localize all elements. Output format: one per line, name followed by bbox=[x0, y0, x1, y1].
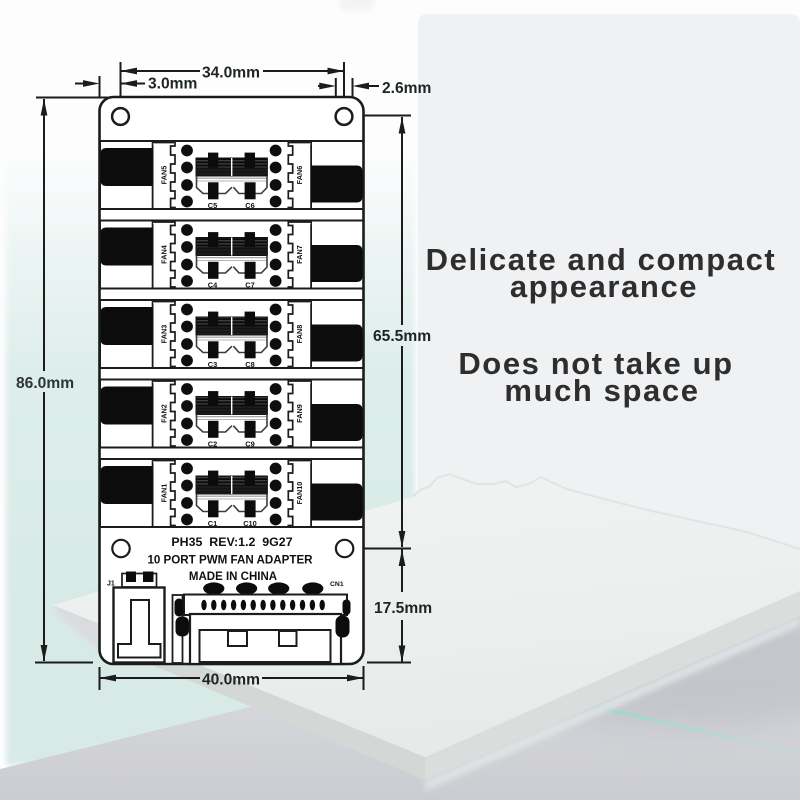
svg-text:MADE IN CHINA: MADE IN CHINA bbox=[189, 571, 277, 583]
svg-text:FAN9: FAN9 bbox=[295, 404, 304, 423]
svg-text:FAN6: FAN6 bbox=[295, 166, 304, 185]
svg-text:34.0mm: 34.0mm bbox=[202, 65, 260, 82]
svg-text:C2: C2 bbox=[208, 440, 217, 449]
svg-text:C4: C4 bbox=[208, 281, 218, 290]
svg-text:FAN2: FAN2 bbox=[160, 404, 169, 423]
svg-text:86.0mm: 86.0mm bbox=[16, 375, 74, 392]
svg-text:10 PORT PWM FAN ADAPTER: 10 PORT PWM FAN ADAPTER bbox=[147, 554, 313, 567]
svg-text:FAN8: FAN8 bbox=[295, 325, 304, 344]
svg-text:FAN10: FAN10 bbox=[295, 482, 304, 505]
svg-text:PH35 REV:1.2 9G27: PH35 REV:1.2 9G27 bbox=[171, 535, 292, 549]
svg-text:65.5mm: 65.5mm bbox=[373, 328, 431, 345]
svg-text:CN1: CN1 bbox=[330, 581, 344, 588]
svg-text:C8: C8 bbox=[245, 360, 254, 369]
svg-text:appearance: appearance bbox=[510, 269, 698, 304]
svg-text:FAN7: FAN7 bbox=[295, 245, 304, 264]
svg-text:FAN1: FAN1 bbox=[160, 484, 169, 503]
svg-text:C5: C5 bbox=[208, 201, 217, 210]
svg-text:17.5mm: 17.5mm bbox=[374, 600, 432, 617]
svg-text:C1: C1 bbox=[208, 519, 217, 528]
svg-text:FAN4: FAN4 bbox=[160, 244, 169, 264]
svg-text:FAN3: FAN3 bbox=[160, 325, 169, 344]
svg-text:3.0mm: 3.0mm bbox=[148, 76, 197, 93]
svg-text:C9: C9 bbox=[245, 440, 254, 449]
svg-text:FAN5: FAN5 bbox=[160, 166, 169, 185]
svg-text:C6: C6 bbox=[245, 201, 254, 210]
svg-text:2.6mm: 2.6mm bbox=[382, 80, 431, 97]
svg-text:much space: much space bbox=[504, 373, 699, 408]
svg-text:C3: C3 bbox=[208, 360, 217, 369]
svg-text:C7: C7 bbox=[245, 281, 254, 290]
svg-text:40.0mm: 40.0mm bbox=[202, 672, 260, 689]
svg-text:C10: C10 bbox=[243, 519, 257, 528]
